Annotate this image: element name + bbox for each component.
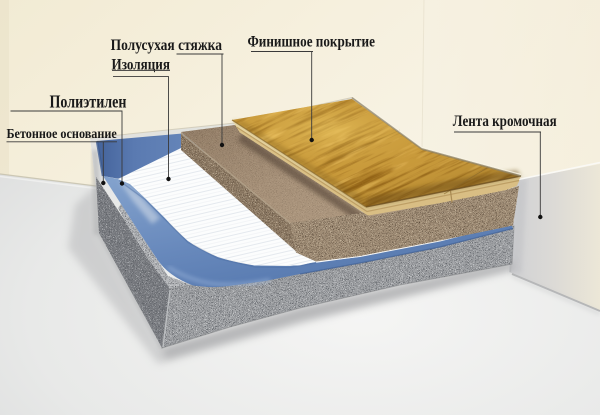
svg-text:Бетонное основание: Бетонное основание (7, 125, 117, 141)
svg-text:Полиэтилен: Полиэтилен (50, 93, 127, 112)
svg-text:Финишное покрытие: Финишное покрытие (248, 34, 375, 51)
svg-text:Полусухая стяжка: Полусухая стяжка (111, 37, 223, 54)
svg-text:Лента кромочная: Лента кромочная (453, 113, 557, 130)
svg-text:Изоляция: Изоляция (112, 56, 171, 73)
